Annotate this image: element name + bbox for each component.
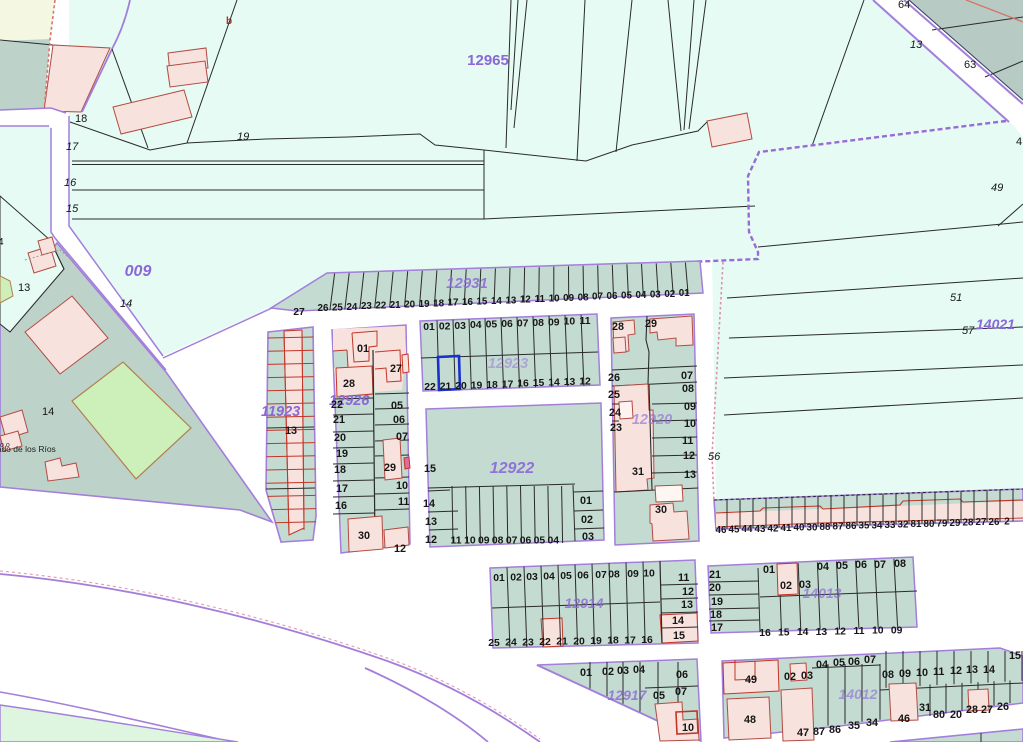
svg-text:10: 10	[396, 480, 408, 492]
svg-text:16: 16	[335, 500, 347, 512]
svg-text:14: 14	[672, 615, 684, 627]
svg-text:03: 03	[617, 665, 629, 677]
svg-text:08: 08	[682, 383, 694, 395]
svg-text:18: 18	[433, 298, 444, 309]
svg-text:07: 07	[592, 292, 603, 303]
svg-text:64: 64	[898, 0, 910, 11]
svg-text:05: 05	[560, 571, 572, 582]
svg-text:08: 08	[492, 536, 504, 547]
svg-text:30: 30	[807, 522, 818, 533]
svg-text:29: 29	[384, 462, 396, 474]
svg-text:29: 29	[645, 318, 657, 330]
svg-text:04: 04	[816, 659, 828, 671]
svg-text:31: 31	[919, 702, 931, 714]
svg-text:02: 02	[581, 514, 593, 526]
svg-text:10: 10	[916, 667, 928, 679]
svg-text:15: 15	[673, 630, 685, 642]
svg-text:12: 12	[425, 534, 437, 546]
svg-text:03: 03	[526, 572, 538, 583]
svg-text:01: 01	[679, 288, 690, 299]
svg-text:02: 02	[780, 580, 792, 592]
svg-text:08: 08	[532, 318, 544, 329]
svg-text:14: 14	[42, 406, 54, 418]
svg-text:16: 16	[462, 297, 473, 308]
svg-text:05: 05	[836, 560, 848, 572]
svg-text:35: 35	[848, 720, 860, 732]
svg-text:20: 20	[334, 432, 346, 444]
svg-text:12965: 12965	[467, 52, 509, 69]
svg-text:14: 14	[797, 627, 809, 638]
svg-text:63: 63	[964, 59, 976, 71]
svg-text:19: 19	[711, 596, 723, 608]
svg-text:07: 07	[506, 536, 518, 547]
svg-text:06: 06	[520, 536, 532, 547]
svg-text:20: 20	[455, 381, 467, 392]
svg-text:27: 27	[981, 704, 993, 716]
svg-text:12: 12	[394, 543, 406, 555]
svg-text:15: 15	[66, 203, 79, 215]
svg-text:23: 23	[361, 301, 372, 312]
svg-text:01: 01	[580, 667, 592, 679]
svg-text:31: 31	[632, 466, 644, 478]
svg-text:10: 10	[549, 294, 560, 305]
svg-text:14021: 14021	[976, 316, 1015, 332]
svg-text:13: 13	[285, 425, 297, 437]
svg-text:87: 87	[813, 726, 825, 738]
svg-text:04: 04	[470, 320, 482, 331]
svg-text:01: 01	[580, 495, 592, 507]
svg-text:17: 17	[66, 141, 79, 153]
svg-text:18: 18	[334, 464, 346, 476]
svg-text:12914: 12914	[565, 595, 604, 611]
svg-text:05: 05	[653, 690, 665, 702]
svg-text:06: 06	[855, 559, 867, 571]
svg-text:21: 21	[440, 382, 452, 393]
svg-text:06: 06	[848, 656, 860, 668]
svg-text:07: 07	[864, 654, 876, 666]
svg-text:05: 05	[621, 291, 632, 302]
svg-text:14: 14	[423, 498, 435, 510]
svg-text:03: 03	[801, 670, 813, 682]
svg-text:12922: 12922	[490, 460, 535, 477]
svg-text:13: 13	[425, 516, 437, 528]
svg-text:21: 21	[556, 637, 568, 648]
svg-text:12931: 12931	[446, 275, 488, 292]
svg-text:20: 20	[950, 709, 962, 721]
svg-text:01: 01	[493, 573, 505, 584]
svg-text:11: 11	[682, 435, 693, 447]
svg-text:27: 27	[390, 363, 402, 375]
svg-text:81: 81	[911, 519, 922, 530]
svg-text:13: 13	[681, 599, 693, 611]
svg-text:04: 04	[817, 561, 829, 573]
svg-text:05: 05	[391, 400, 403, 412]
svg-text:26: 26	[997, 701, 1009, 713]
svg-text:15: 15	[533, 378, 545, 389]
svg-text:13: 13	[505, 295, 516, 306]
svg-text:2: 2	[1004, 516, 1010, 527]
svg-text:10: 10	[682, 722, 694, 734]
svg-text:12920: 12920	[632, 412, 672, 428]
svg-text:22: 22	[375, 301, 386, 312]
svg-text:4: 4	[1016, 136, 1022, 148]
svg-text:19: 19	[336, 448, 348, 460]
svg-text:01: 01	[423, 322, 435, 333]
svg-text:14012: 14012	[839, 686, 878, 702]
svg-text:41: 41	[781, 523, 792, 534]
svg-text:09: 09	[548, 317, 560, 328]
svg-text:17: 17	[502, 379, 514, 390]
svg-text:22: 22	[539, 637, 551, 648]
svg-text:25: 25	[608, 389, 620, 401]
svg-text:20: 20	[404, 299, 415, 310]
svg-text:08: 08	[578, 292, 589, 303]
svg-text:35: 35	[859, 521, 870, 532]
svg-text:14: 14	[983, 664, 995, 676]
svg-text:40: 40	[794, 523, 805, 534]
svg-text:11: 11	[933, 666, 944, 678]
svg-text:45: 45	[729, 525, 740, 536]
svg-text:11: 11	[854, 626, 865, 637]
svg-text:88: 88	[820, 522, 831, 533]
svg-text:33: 33	[885, 520, 896, 531]
svg-text:07: 07	[681, 370, 693, 382]
svg-text:47: 47	[797, 727, 809, 739]
svg-text:10: 10	[464, 536, 476, 547]
svg-text:51: 51	[950, 292, 962, 304]
svg-text:30: 30	[655, 504, 667, 516]
svg-text:11: 11	[678, 572, 689, 584]
svg-text:09: 09	[478, 536, 490, 547]
svg-text:09: 09	[891, 625, 903, 636]
svg-text:09: 09	[899, 668, 911, 680]
svg-text:13: 13	[816, 627, 828, 638]
svg-text:09: 09	[627, 569, 639, 580]
svg-text:34: 34	[872, 520, 883, 531]
svg-text:56: 56	[708, 451, 721, 463]
svg-text:17: 17	[711, 622, 723, 634]
svg-text:16: 16	[517, 379, 529, 390]
svg-text:12: 12	[682, 586, 694, 598]
svg-text:15: 15	[1009, 650, 1021, 662]
svg-text:21: 21	[390, 300, 401, 311]
svg-text:03: 03	[582, 531, 594, 543]
svg-text:24: 24	[609, 407, 621, 419]
svg-text:04: 04	[548, 536, 560, 547]
svg-text:18: 18	[486, 380, 498, 391]
svg-text:79: 79	[937, 518, 948, 529]
svg-text:10: 10	[872, 626, 884, 637]
svg-text:14: 14	[491, 296, 502, 307]
svg-text:13: 13	[18, 282, 30, 294]
svg-text:42: 42	[768, 523, 779, 534]
svg-text:o o: o o	[0, 442, 10, 449]
svg-text:34: 34	[866, 717, 878, 729]
svg-text:26: 26	[989, 517, 1000, 528]
svg-text:01: 01	[357, 343, 369, 355]
svg-text:06: 06	[393, 414, 405, 426]
svg-text:18: 18	[607, 636, 619, 647]
svg-text:03: 03	[454, 321, 466, 332]
svg-text:4: 4	[0, 237, 4, 248]
svg-text:86: 86	[829, 724, 841, 736]
svg-text:12: 12	[834, 627, 846, 638]
svg-text:07: 07	[874, 559, 886, 571]
svg-text:48: 48	[744, 714, 756, 726]
svg-text:04: 04	[543, 572, 555, 583]
svg-text:19: 19	[237, 131, 249, 143]
svg-text:14: 14	[548, 378, 560, 389]
svg-text:15: 15	[476, 297, 487, 308]
svg-text:24: 24	[346, 302, 357, 313]
svg-text:10: 10	[564, 317, 576, 328]
svg-text:05: 05	[534, 536, 546, 547]
svg-text:44: 44	[742, 524, 753, 535]
svg-text:10: 10	[684, 418, 696, 430]
svg-text:06: 06	[501, 319, 513, 330]
svg-text:49: 49	[745, 674, 757, 686]
svg-text:28: 28	[343, 378, 355, 390]
svg-text:26: 26	[608, 372, 620, 384]
svg-text:06: 06	[577, 571, 589, 582]
svg-text:07: 07	[517, 318, 529, 329]
svg-text:12: 12	[520, 295, 531, 306]
svg-text:28: 28	[966, 704, 978, 716]
svg-text:11923: 11923	[261, 404, 300, 420]
svg-text:11: 11	[535, 294, 546, 305]
svg-text:23: 23	[610, 422, 622, 434]
svg-text:49: 49	[991, 182, 1003, 194]
svg-text:13: 13	[966, 664, 978, 676]
svg-text:20: 20	[573, 636, 585, 647]
svg-text:30: 30	[358, 530, 370, 542]
svg-text:43: 43	[755, 524, 766, 535]
svg-text:01: 01	[763, 564, 775, 576]
svg-text:15: 15	[778, 628, 790, 639]
svg-text:08: 08	[894, 558, 906, 570]
svg-text:25: 25	[488, 638, 500, 649]
svg-text:17: 17	[336, 483, 348, 495]
svg-text:13: 13	[684, 469, 696, 481]
svg-text:05: 05	[833, 657, 845, 669]
svg-text:29: 29	[950, 518, 961, 529]
svg-text:21: 21	[333, 414, 345, 426]
svg-text:15: 15	[424, 463, 436, 475]
svg-text:02: 02	[602, 666, 614, 678]
svg-text:22: 22	[424, 382, 436, 393]
svg-text:09: 09	[563, 293, 574, 304]
svg-text:19: 19	[590, 636, 602, 647]
svg-text:04: 04	[633, 664, 645, 676]
svg-text:07: 07	[675, 686, 687, 698]
svg-text:02: 02	[664, 289, 675, 300]
svg-text:18: 18	[710, 609, 722, 621]
svg-text:11: 11	[398, 496, 409, 508]
svg-text:06: 06	[607, 291, 618, 302]
svg-text:03: 03	[799, 579, 811, 591]
svg-text:46: 46	[898, 713, 910, 725]
svg-text:21: 21	[709, 569, 721, 581]
svg-text:10: 10	[643, 569, 655, 580]
svg-text:14: 14	[120, 298, 132, 310]
svg-text:25: 25	[332, 302, 343, 313]
svg-text:02: 02	[439, 321, 451, 332]
svg-text:06: 06	[676, 669, 688, 681]
svg-text:03: 03	[650, 289, 661, 300]
svg-text:17: 17	[448, 298, 459, 309]
svg-text:32: 32	[898, 520, 909, 531]
svg-text:02: 02	[510, 573, 522, 584]
svg-text:04: 04	[635, 290, 646, 301]
svg-text:07: 07	[595, 570, 607, 581]
svg-text:12: 12	[950, 665, 962, 677]
svg-text:02: 02	[784, 671, 796, 683]
svg-text:24: 24	[505, 638, 517, 649]
svg-text:09: 09	[684, 401, 696, 413]
svg-text:80: 80	[933, 709, 945, 721]
svg-text:12923: 12923	[488, 356, 528, 372]
svg-text:12917: 12917	[608, 687, 648, 703]
svg-text:23: 23	[522, 637, 534, 648]
svg-text:08: 08	[608, 570, 620, 581]
svg-text:05: 05	[486, 320, 498, 331]
svg-text:17: 17	[624, 635, 636, 646]
svg-text:16: 16	[64, 177, 77, 189]
svg-text:80: 80	[924, 519, 935, 530]
svg-text:08: 08	[882, 669, 894, 681]
svg-text:18: 18	[75, 113, 87, 125]
svg-text:12: 12	[579, 377, 591, 388]
svg-text:28: 28	[963, 518, 974, 529]
svg-text:13: 13	[564, 377, 576, 388]
svg-text:22: 22	[331, 399, 343, 411]
svg-text:11: 11	[580, 316, 591, 327]
svg-text:46: 46	[716, 525, 727, 536]
svg-text:19: 19	[471, 380, 483, 391]
svg-text:07: 07	[396, 431, 408, 443]
svg-text:11: 11	[451, 536, 462, 547]
svg-text:20: 20	[709, 582, 721, 594]
svg-text:28: 28	[612, 321, 624, 333]
svg-text:009: 009	[125, 263, 152, 280]
svg-text:12: 12	[683, 450, 695, 462]
svg-text:87: 87	[833, 522, 844, 533]
svg-text:19: 19	[419, 299, 430, 310]
svg-text:27: 27	[293, 307, 305, 318]
svg-text:26: 26	[318, 303, 329, 314]
svg-text:16: 16	[641, 635, 653, 646]
svg-text:57: 57	[962, 325, 975, 337]
svg-text:27: 27	[976, 517, 987, 528]
svg-text:13: 13	[910, 39, 923, 51]
svg-text:86: 86	[846, 521, 857, 532]
svg-text:16: 16	[759, 628, 771, 639]
